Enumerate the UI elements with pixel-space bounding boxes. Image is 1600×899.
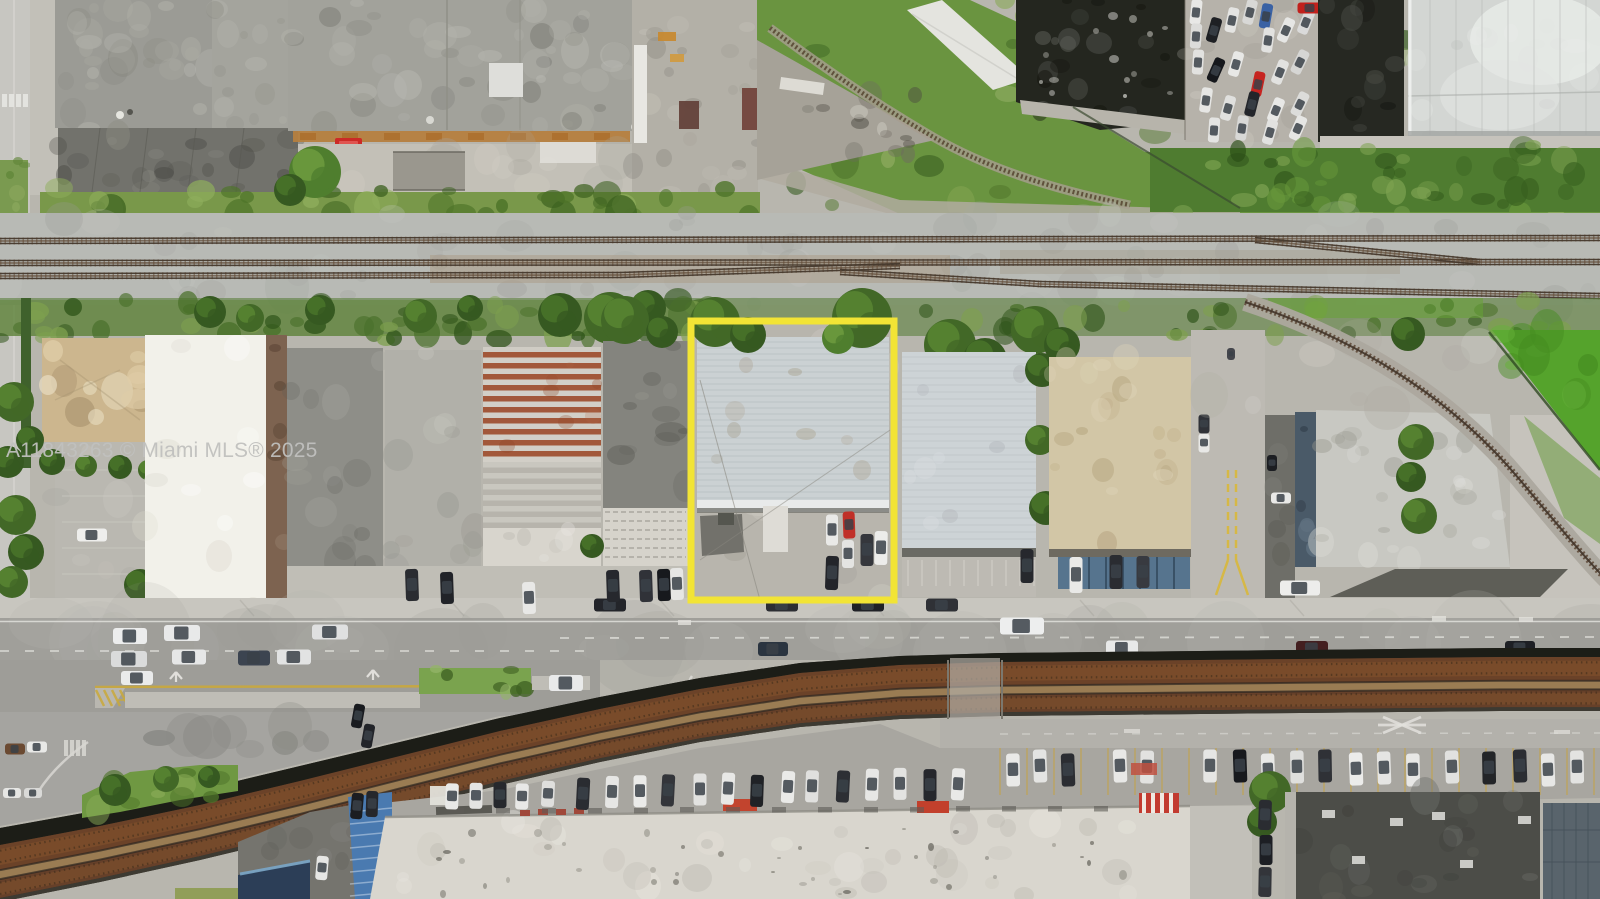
svg-text:A11843263 © Miami MLS® 2025: A11843263 © Miami MLS® 2025 (6, 439, 317, 462)
